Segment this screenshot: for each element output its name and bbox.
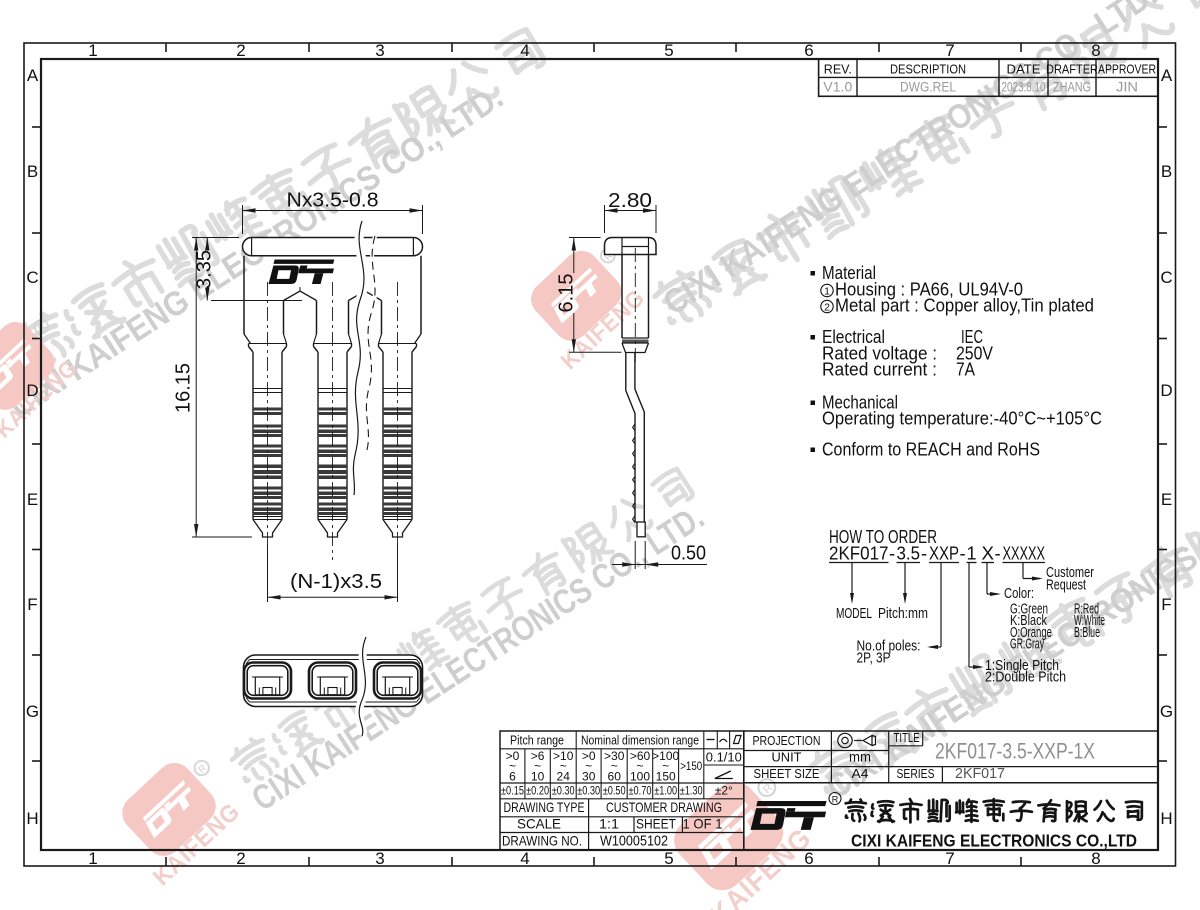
- svg-text:±0.20: ±0.20: [526, 786, 549, 798]
- svg-text:A: A: [1161, 66, 1173, 85]
- svg-text:-: -: [889, 543, 895, 564]
- svg-text:1: 1: [824, 286, 830, 298]
- svg-text:7A: 7A: [956, 359, 976, 380]
- svg-text:F: F: [1161, 595, 1171, 614]
- svg-text:±1.00: ±1.00: [654, 786, 677, 798]
- svg-text:JIN: JIN: [1116, 80, 1138, 95]
- svg-text:3.5: 3.5: [897, 543, 921, 564]
- svg-text:C: C: [26, 268, 38, 287]
- svg-text:>150: >150: [680, 759, 702, 773]
- svg-text:B: B: [27, 162, 38, 181]
- svg-text:0.50: 0.50: [671, 543, 706, 565]
- svg-text:D: D: [26, 381, 38, 400]
- svg-text:150: 150: [656, 770, 676, 784]
- svg-text:2KF017: 2KF017: [829, 543, 889, 564]
- svg-text:REV.: REV.: [824, 62, 852, 77]
- svg-text:8: 8: [1091, 849, 1100, 868]
- svg-text:2: 2: [236, 849, 245, 868]
- svg-text:60: 60: [608, 770, 622, 784]
- svg-text:DWG.REL: DWG.REL: [900, 80, 956, 95]
- svg-text:V1.0: V1.0: [823, 80, 852, 95]
- svg-text:W10005102: W10005102: [600, 834, 668, 850]
- svg-text:±1.30: ±1.30: [680, 786, 703, 798]
- svg-text:DESCRIPTION: DESCRIPTION: [890, 62, 966, 77]
- svg-text:2KF017: 2KF017: [955, 766, 1005, 782]
- svg-text:2: 2: [236, 41, 245, 60]
- svg-text:H: H: [1160, 809, 1172, 828]
- svg-text:A4: A4: [852, 766, 869, 781]
- svg-text:XXXXX: XXXXX: [1003, 543, 1046, 564]
- svg-text:±0.50: ±0.50: [603, 786, 626, 798]
- svg-text:6: 6: [804, 849, 813, 868]
- svg-text:5: 5: [664, 849, 673, 868]
- svg-text:G: G: [26, 702, 39, 721]
- svg-text:2KF017-3.5-XXP-1X: 2KF017-3.5-XXP-1X: [935, 739, 1095, 764]
- svg-text:mm: mm: [849, 750, 871, 765]
- svg-text:2: 2: [824, 302, 830, 314]
- svg-text:CIXI KAIFENG ELECTRONICS CO.,: CIXI KAIFENG ELECTRONICS CO., LTD.: [657, 0, 1164, 323]
- svg-text:2.80: 2.80: [608, 190, 652, 212]
- svg-text:±0.15: ±0.15: [501, 786, 524, 798]
- svg-text:F: F: [27, 595, 37, 614]
- svg-text:DRAWING NO.: DRAWING NO.: [502, 833, 582, 849]
- svg-text:10: 10: [531, 770, 545, 784]
- svg-text:Metal part : Copper alloy,Tin: Metal part : Copper alloy,Tin plated: [835, 295, 1094, 316]
- svg-text:8: 8: [1091, 41, 1100, 60]
- svg-text:E: E: [1161, 490, 1172, 509]
- svg-text:SCALE: SCALE: [517, 816, 561, 832]
- svg-text:6: 6: [804, 41, 813, 60]
- svg-text:SERIES: SERIES: [897, 766, 935, 781]
- svg-text:GR:Gray: GR:Gray: [1010, 637, 1044, 653]
- svg-text:6: 6: [509, 770, 516, 784]
- svg-text:SHEET: SHEET: [636, 816, 676, 832]
- svg-text:30: 30: [582, 770, 596, 784]
- svg-text:G: G: [1160, 702, 1173, 721]
- svg-text:Pitch range: Pitch range: [510, 734, 564, 748]
- svg-text:X: X: [982, 543, 995, 564]
- svg-text:3: 3: [375, 41, 384, 60]
- svg-text:B:Blue: B:Blue: [1074, 625, 1100, 641]
- svg-text:24: 24: [557, 770, 571, 784]
- svg-text:7: 7: [945, 849, 954, 868]
- svg-text:A: A: [27, 66, 39, 85]
- svg-text:(N-1)x3.5: (N-1)x3.5: [290, 571, 382, 593]
- svg-text:3.35: 3.35: [194, 250, 216, 289]
- svg-text:Rated current :: Rated current :: [822, 359, 937, 380]
- svg-text:R: R: [832, 795, 839, 805]
- svg-text:TITLE: TITLE: [894, 730, 920, 745]
- svg-text:Nx3.5-0.8: Nx3.5-0.8: [287, 190, 379, 212]
- svg-text:0.1/10: 0.1/10: [706, 750, 742, 765]
- svg-text:±0.30: ±0.30: [577, 786, 600, 798]
- svg-text:2P, 3P: 2P, 3P: [857, 651, 891, 667]
- svg-text:1: 1: [88, 849, 97, 868]
- svg-text:H: H: [26, 809, 38, 828]
- svg-text:-: -: [921, 543, 927, 564]
- svg-text:2:Double Pitch: 2:Double Pitch: [985, 670, 1066, 686]
- svg-text:DRAFTER: DRAFTER: [1046, 62, 1098, 77]
- svg-text:4: 4: [520, 41, 529, 60]
- svg-text:ZHANG: ZHANG: [1053, 80, 1091, 95]
- svg-text:UNIT: UNIT: [772, 750, 802, 765]
- svg-text:Nominal dimension range: Nominal dimension range: [581, 734, 699, 748]
- svg-text:100: 100: [630, 770, 650, 784]
- svg-text:Request: Request: [1046, 578, 1086, 594]
- svg-text:1: 1: [88, 41, 97, 60]
- svg-text:±0.70: ±0.70: [629, 786, 652, 798]
- svg-text:DATE: DATE: [1007, 62, 1041, 77]
- svg-text:±2°: ±2°: [715, 784, 733, 798]
- svg-text:XXP: XXP: [929, 543, 959, 564]
- svg-text:SHEET SIZE: SHEET SIZE: [754, 766, 820, 781]
- svg-text:DRAWING TYPE: DRAWING TYPE: [504, 799, 585, 815]
- svg-text:16.15: 16.15: [173, 363, 195, 413]
- svg-text:2023.8.10: 2023.8.10: [1002, 80, 1046, 95]
- svg-text:Operating temperature:-40°C~+1: Operating temperature:-40°C~+105°C: [822, 408, 1102, 429]
- svg-text:CIXI KAIFENG ELECTRONICS CO.,L: CIXI KAIFENG ELECTRONICS CO.,LTD: [851, 831, 1137, 851]
- svg-text:E: E: [27, 490, 38, 509]
- svg-text:3: 3: [375, 849, 384, 868]
- svg-text:CUSTOMER DRAWING: CUSTOMER DRAWING: [606, 799, 722, 815]
- svg-text:-: -: [995, 543, 1001, 564]
- svg-text:6.15: 6.15: [556, 274, 578, 313]
- svg-text:4: 4: [520, 849, 529, 868]
- svg-text:1:1: 1:1: [599, 816, 619, 832]
- svg-text:MODEL: MODEL: [836, 606, 872, 622]
- svg-text:Conform to REACH and RoHS: Conform to REACH and RoHS: [822, 439, 1040, 460]
- svg-text:±0.30: ±0.30: [552, 786, 575, 798]
- svg-text:-: -: [960, 543, 966, 564]
- svg-text:APPROVER: APPROVER: [1098, 62, 1156, 77]
- svg-text:Color:: Color:: [1004, 586, 1034, 602]
- svg-text:5: 5: [664, 41, 673, 60]
- svg-text:7: 7: [945, 41, 954, 60]
- svg-text:1 OF 1: 1 OF 1: [683, 816, 723, 832]
- svg-text:C: C: [1160, 268, 1172, 287]
- svg-text:B: B: [1161, 162, 1172, 181]
- svg-text:1: 1: [967, 543, 977, 564]
- svg-text:PROJECTION: PROJECTION: [753, 733, 821, 748]
- svg-text:Pitch:mm: Pitch:mm: [878, 606, 928, 622]
- svg-text:D: D: [1160, 381, 1172, 400]
